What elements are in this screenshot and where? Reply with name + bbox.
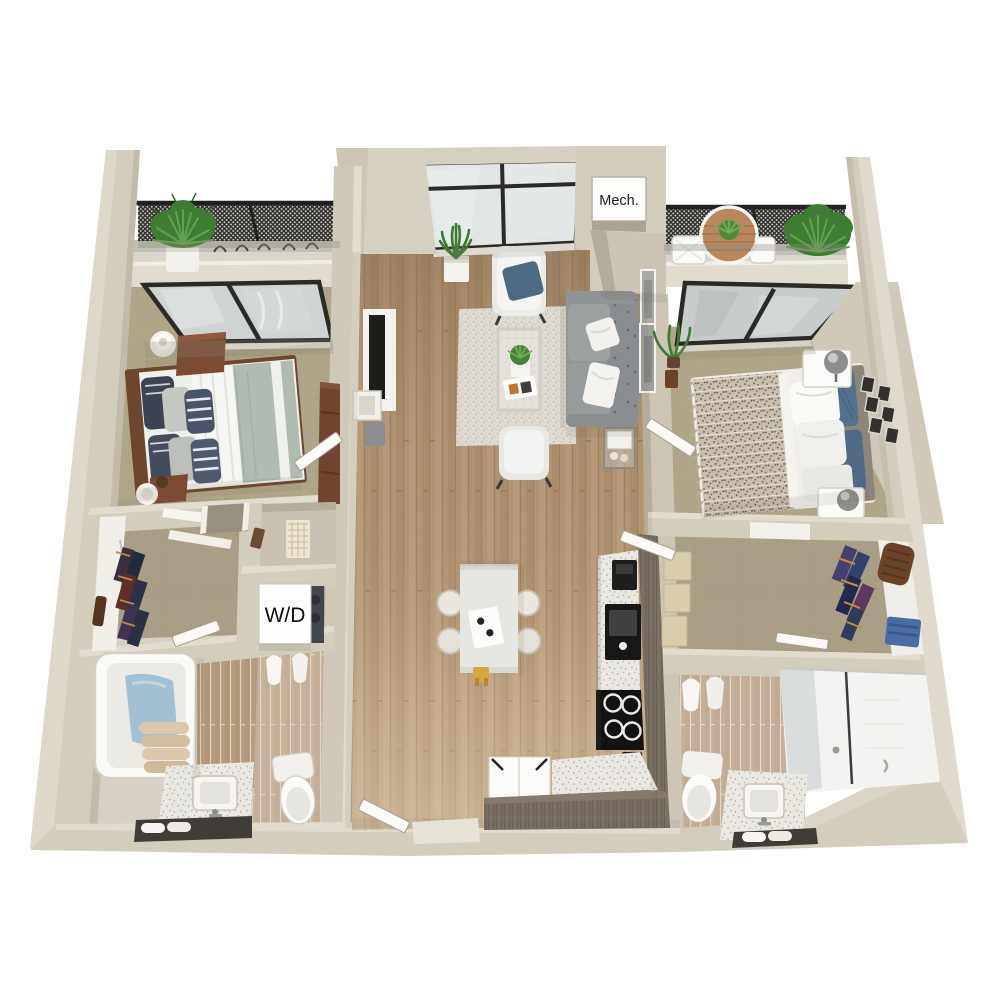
- svg-text:Mech.: Mech.: [599, 193, 639, 209]
- svg-text:W/D: W/D: [265, 604, 306, 627]
